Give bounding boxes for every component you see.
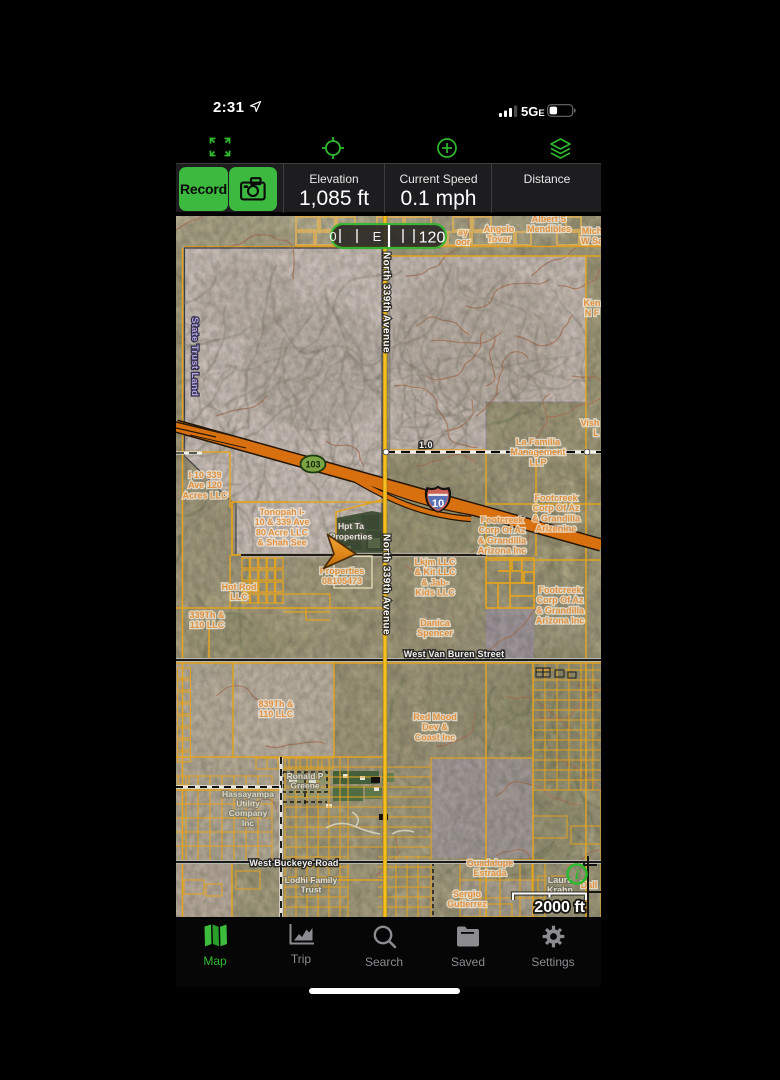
svg-text:103: 103 [305, 460, 320, 470]
svg-text:Vish Pr: Vish Pr [581, 418, 601, 428]
svg-text:Sergio: Sergio [453, 889, 482, 899]
svg-text:839Th &: 839Th & [258, 699, 294, 709]
svg-text:110 LLC: 110 LLC [259, 709, 294, 719]
svg-text:Arizona Inc: Arizona Inc [536, 616, 585, 626]
svg-text:Tovar: Tovar [487, 234, 511, 244]
svg-text:Arizenine: Arizenine [536, 524, 577, 534]
svg-text:Dev &: Dev & [422, 722, 448, 732]
svg-text:L: L [593, 428, 599, 438]
svg-text:Company: Company [229, 808, 268, 818]
svg-text:Lkjm LLC: Lkjm LLC [414, 557, 456, 567]
svg-text:I-10 339: I-10 339 [188, 470, 221, 480]
svg-text:oor: oor [456, 237, 471, 247]
svg-text:Acres LLC: Acres LLC [182, 490, 228, 500]
svg-text:W Sa: W Sa [581, 236, 601, 246]
svg-text:N F: N F [585, 308, 600, 318]
svg-text:E: E [373, 229, 382, 244]
svg-text:Ronald P: Ronald P [287, 771, 324, 781]
svg-text:10 & 339 Ave: 10 & 339 Ave [255, 517, 310, 527]
svg-text:Lodhi Family: Lodhi Family [285, 875, 338, 885]
svg-text:Spencer: Spencer [417, 628, 453, 638]
svg-text:Footcreek: Footcreek [480, 515, 524, 525]
svg-text:0: 0 [329, 229, 336, 244]
svg-text:Ave 120: Ave 120 [188, 480, 222, 490]
svg-text:Corp Of Az: Corp Of Az [479, 525, 526, 535]
svg-text:Footcreek: Footcreek [534, 493, 578, 503]
svg-text:Mich: Mich [582, 226, 601, 236]
svg-text:Trust: Trust [301, 885, 322, 895]
svg-text:Ken: Ken [583, 298, 600, 308]
svg-text:Hassayampa: Hassayampa [222, 789, 274, 799]
svg-text:LLP: LLP [530, 457, 547, 467]
svg-text:Estrada: Estrada [473, 868, 507, 878]
svg-text:80 Acre LLC: 80 Acre LLC [256, 527, 309, 537]
svg-text:Utility: Utility [236, 799, 260, 809]
svg-text:Kids LLC: Kids LLC [415, 588, 455, 598]
svg-text:Coast Inc: Coast Inc [415, 732, 456, 742]
svg-text:Albert S: Albert S [532, 216, 567, 224]
svg-text:& Grandilla: & Grandilla [532, 513, 581, 523]
svg-text:110 LLC: 110 LLC [190, 620, 225, 630]
svg-text:& Grandilla: & Grandilla [478, 535, 527, 545]
svg-text:Guadalupe: Guadalupe [467, 858, 514, 868]
svg-text:West Buckeye Road: West Buckeye Road [249, 858, 338, 868]
svg-text:& Shah See: & Shah See [257, 538, 307, 548]
svg-text:Tonopah I-: Tonopah I- [259, 507, 304, 517]
svg-text:Hpt Ta: Hpt Ta [338, 521, 364, 531]
svg-text:LLC: LLC [230, 592, 248, 602]
svg-text:& Jab-: & Jab- [421, 577, 449, 587]
svg-text:Arizona Inc: Arizona Inc [478, 546, 527, 556]
svg-text:Footcreek: Footcreek [538, 585, 582, 595]
svg-text:& Kit LLC: & Kit LLC [415, 567, 456, 577]
svg-text:State Trust Land: State Trust Land [189, 317, 200, 396]
svg-text:La Familia: La Familia [516, 437, 561, 447]
svg-text:10: 10 [432, 498, 445, 510]
svg-text:08105473: 08105473 [322, 576, 362, 586]
svg-text:Management: Management [510, 447, 565, 457]
svg-text:Greene: Greene [290, 781, 320, 791]
svg-text:Red Mood: Red Mood [413, 712, 457, 722]
svg-text:i: i [575, 868, 579, 883]
svg-text:Danica: Danica [420, 618, 451, 628]
svg-text:North 339th Avenue: North 339th Avenue [381, 534, 392, 635]
svg-text:Inc: Inc [242, 818, 255, 828]
svg-text:Corp Of Az: Corp Of Az [537, 595, 584, 605]
svg-text:ay: ay [458, 227, 468, 237]
svg-text:Angelo: Angelo [484, 224, 515, 234]
svg-text:Gutierrez: Gutierrez [447, 899, 487, 909]
svg-text:& Grandilla: & Grandilla [536, 605, 585, 615]
svg-text:2000 ft: 2000 ft [534, 899, 585, 916]
svg-text:Hot Rod: Hot Rod [222, 582, 257, 592]
svg-text:120: 120 [419, 230, 446, 247]
svg-text:1.0: 1.0 [419, 440, 433, 450]
svg-text:Corp Of Az: Corp Of Az [533, 503, 580, 513]
svg-text:Mendibles: Mendibles [527, 224, 571, 234]
svg-text:North 339th Avenue: North 339th Avenue [381, 252, 392, 353]
svg-text:339Th &: 339Th & [189, 610, 225, 620]
svg-text:West Van Buren Street: West Van Buren Street [404, 649, 505, 659]
